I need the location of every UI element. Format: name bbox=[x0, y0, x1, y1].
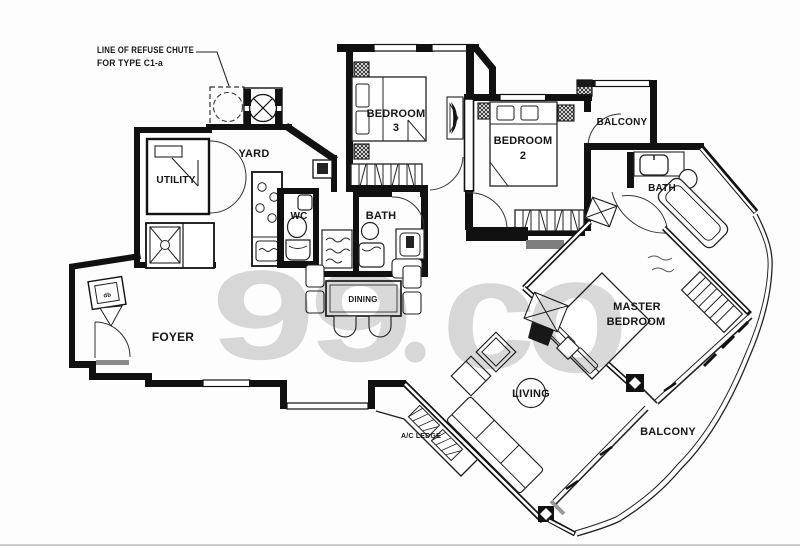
svg-text:A/C LEDGE: A/C LEDGE bbox=[401, 433, 441, 440]
svg-text:FOYER: FOYER bbox=[152, 330, 194, 344]
svg-text:db: db bbox=[103, 292, 112, 299]
svg-text:9: 9 bbox=[209, 243, 316, 387]
svg-text:FOR TYPE C1-a: FOR TYPE C1-a bbox=[97, 58, 164, 68]
svg-text:UTILITY: UTILITY bbox=[156, 175, 195, 186]
svg-text:YARD: YARD bbox=[239, 148, 270, 160]
svg-text:LINE OF REFUSE CHUTE: LINE OF REFUSE CHUTE bbox=[97, 45, 194, 55]
svg-text:BATH: BATH bbox=[648, 183, 676, 194]
svg-text:BATH: BATH bbox=[366, 210, 397, 222]
svg-text:BEDROOM: BEDROOM bbox=[367, 108, 426, 120]
svg-text:3: 3 bbox=[393, 122, 399, 134]
svg-text:BALCONY: BALCONY bbox=[640, 426, 696, 438]
svg-text:BEDROOM: BEDROOM bbox=[494, 135, 553, 147]
svg-text:WC: WC bbox=[290, 211, 307, 222]
svg-text:BALCONY: BALCONY bbox=[597, 117, 648, 128]
svg-text:9: 9 bbox=[307, 245, 414, 389]
svg-text:2: 2 bbox=[520, 150, 526, 162]
svg-text:o: o bbox=[523, 220, 630, 408]
